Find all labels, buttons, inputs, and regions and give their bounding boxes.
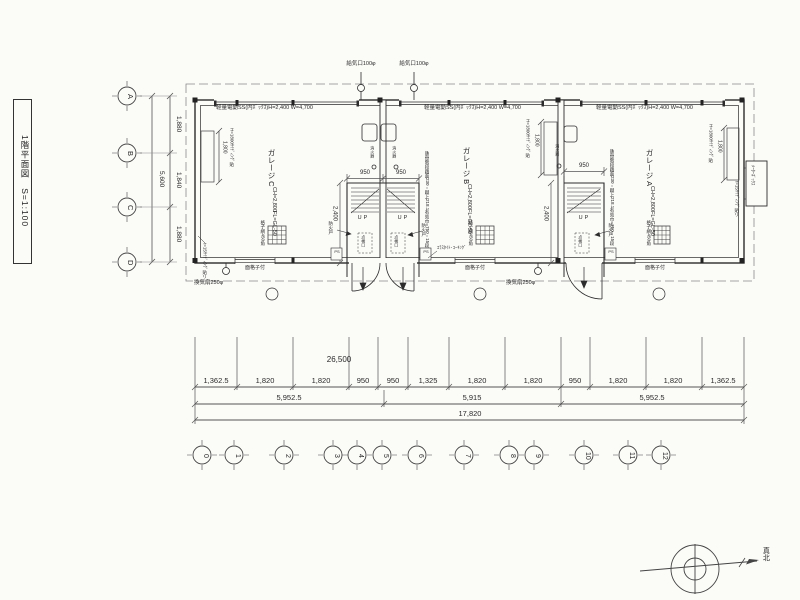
siding-dim-a: 1,800 (716, 140, 721, 153)
grid-col-4: 4 (350, 447, 364, 464)
dim-row3-total: 17,820 (449, 410, 491, 418)
grid-col-3: 3 (326, 447, 340, 464)
garage-a-info: ガレージ A CH=2,800 FL=GL-50 (644, 149, 655, 201)
ps-label-1: PS (334, 250, 340, 254)
inspection-hatch-b: 点検口 (394, 235, 398, 247)
grille-label-b: 面格子付 (458, 266, 492, 271)
up-label-b: UP (387, 216, 420, 222)
dim-row1-6: 1,820 (456, 377, 498, 385)
ps-label-2: PS (423, 250, 429, 254)
stair-name: 鉄骨階段 (424, 151, 430, 169)
grid-row-a: A (121, 88, 134, 105)
grid-col-2: 2 (277, 447, 291, 464)
grid-row-b: B (121, 145, 134, 162)
floor-plan-sheet: { "title_block": {"label": "1階平面図 S=1:10… (0, 0, 800, 600)
dim-950-c: 950 (353, 170, 377, 176)
dim-950-b: 950 (389, 170, 413, 176)
dim-row1-9: 1,820 (597, 377, 639, 385)
siding-dim-c: 1,800 (221, 141, 226, 154)
up-label-c: UP (347, 216, 380, 222)
shutter-note-a: 軽量電動SS(内ﾎﾞｯｸｽ)H=2,400 W=4,700 (596, 106, 693, 112)
dim-950-a: 950 (572, 163, 596, 169)
ext-siding-right: t=15ｻｲﾃﾞｨﾝｸﾞ貼リ (734, 181, 739, 217)
grille-label-a: 面格子付 (638, 266, 672, 271)
dim-site-width: 26,500 (318, 356, 360, 364)
ext-siding-left: t=15ｻｲﾃﾞｨﾝｸﾞ貼リ (202, 243, 207, 279)
dim-row1-11: 1,362.5 (702, 377, 744, 385)
fire-door-a: 防火戸 (608, 223, 613, 237)
grille-label-c: 面格子付 (238, 266, 272, 271)
dim-row1-5: 1,325 (407, 377, 449, 385)
siding-note-b: H=1800ｻｲﾃﾞｨﾝｸﾞ貼 (525, 119, 530, 157)
garage-b-info: ガレージ B CH=2,800 FL=GL-50 (461, 147, 472, 199)
extinguisher-label-a: 消火器 (555, 144, 559, 156)
ps-label-3: PS (608, 250, 614, 254)
dim-row1-3: 950 (351, 377, 375, 385)
grid-row-c: C (121, 199, 134, 216)
dim-left-seg-2: 1,880 (171, 214, 181, 255)
fire-door-b: 防火戸 (421, 223, 426, 237)
grating-label-b: 格子網450角 (468, 220, 473, 246)
grid-col-10: 10 (577, 447, 591, 464)
dim-left-seg-1: 1,840 (171, 160, 181, 201)
dim-row1-2: 1,820 (300, 377, 342, 385)
dim-row2-1: 5,915 (451, 394, 493, 402)
inspection-hatch-c: 点検口 (361, 235, 365, 247)
grid-col-9: 9 (527, 447, 541, 464)
garage-c-fl: FL=GL-50 (266, 211, 277, 236)
stair-note-b: 鉄骨階段 踏面230・蹴上218.1 有効巾=750・15段 (424, 151, 430, 213)
shutter-note-b: 軽量電動SS(内ﾎﾞｯｸｽ)H=2,400 W=4,700 (424, 106, 521, 112)
exhaust-fan-label-1: 換気扇250φ (194, 281, 223, 287)
supply-port-label-1: 給気口100φ (337, 62, 385, 68)
grid-col-0: 0 (195, 447, 209, 464)
garage-a-name: ガレージ A (644, 149, 655, 186)
grid-col-6: 6 (410, 447, 424, 464)
fire-door-c: 防火戸 (328, 221, 333, 235)
dim-row1-7: 1,820 (512, 377, 554, 385)
grid-bubbles-bottom (187, 440, 676, 470)
north-compass (640, 544, 759, 594)
extinguisher-label-b: 消火器 (392, 146, 396, 158)
garage-b-name: ガレージ B (461, 147, 472, 184)
supply-port-label-2: 給気口100φ (390, 62, 438, 68)
siding-dim-b: 1,800 (533, 134, 538, 147)
stair-note-a: 鉄骨階段 踏面230・蹴上218.1 有効巾=750・15段 (609, 149, 615, 211)
stair-tread: 踏面230・蹴上218.1 (609, 167, 615, 208)
grid-col-12: 12 (654, 447, 668, 464)
dim-row1-0: 1,362.5 (195, 377, 237, 385)
dim-left-seg-0: 1,880 (171, 104, 181, 145)
dim-2400-c: 2,400 (331, 206, 337, 221)
siding-note-a: H=1800ｻｲﾃﾞｨﾝｸﾞ貼 (708, 124, 713, 162)
grid-col-8: 8 (502, 447, 516, 464)
plan-linework (0, 0, 800, 600)
siding-note-c: H=1800ｻｲﾃﾞｨﾝｸﾞ貼 (229, 128, 234, 166)
dim-row2-2: 5,952.5 (631, 394, 673, 402)
grating-label-a: 格子網450角 (646, 220, 651, 246)
garage-c-info: ガレージ C CH=2,800 FL=GL-50 (266, 149, 277, 201)
stair-name: 鉄骨階段 (609, 149, 615, 167)
dim-row1-10: 1,820 (652, 377, 694, 385)
dim-row2-0: 5,952.5 (268, 394, 310, 402)
exhaust-fan-label-2: 換気扇250φ (506, 281, 535, 287)
title-block: 1階平面図 S=1:100 (13, 99, 32, 264)
grid-col-11: 11 (621, 447, 635, 464)
grid-col-7: 7 (457, 447, 471, 464)
grid-bubbles-left (112, 81, 142, 277)
grid-col-5: 5 (375, 447, 389, 464)
shutter-note-c: 軽量電動SS(内ﾎﾞｯｸｽ)H=2,400 W=4,700 (216, 106, 313, 112)
meter-box-label: ﾒｰﾀｰﾎﾞｯｸｽ (750, 165, 755, 185)
grid-row-d: D (121, 254, 134, 271)
grating-label-c: 格子網450角 (260, 220, 265, 246)
up-label-a: UP (565, 216, 604, 222)
garage-b-ch: CH=2,800 (461, 184, 472, 209)
extinguisher-label-c: 消火器 (370, 146, 374, 158)
dim-row1-8: 950 (563, 377, 587, 385)
stair-tread: 踏面230・蹴上218.1 (424, 169, 430, 210)
inspection-hatch-a: 点検口 (578, 235, 582, 247)
garage-c-ch: CH=2,800 (266, 187, 277, 212)
caulking-label: ｴﾗｽﾀｲﾄ･ｺｰｷﾝｸﾞ (437, 246, 466, 251)
dim-row1-1: 1,820 (244, 377, 286, 385)
dim-2400-a: 2,400 (542, 206, 548, 221)
north-label: 真北 (762, 547, 769, 561)
dim-row1-4: 950 (381, 377, 405, 385)
garage-a-ch: CH=2,800 (644, 186, 655, 211)
garage-c-name: ガレージ C (266, 149, 277, 187)
grid-col-1: 1 (227, 447, 241, 464)
dim-left-total: 5,600 (154, 159, 164, 200)
